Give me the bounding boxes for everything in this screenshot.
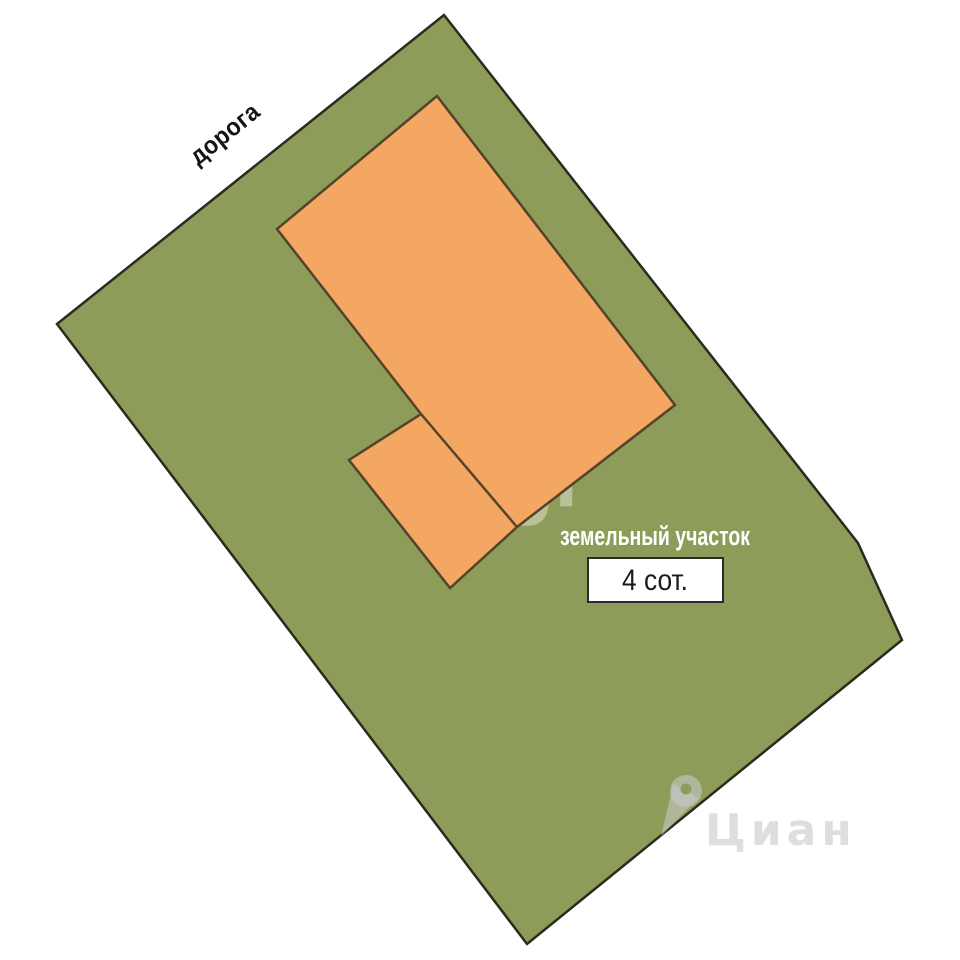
site-plan-canvas: etagi дорога земельный участок 4 сот. Ци…: [0, 0, 960, 960]
area-badge-text: 4 сот.: [622, 564, 688, 597]
watermark-corner: Циан: [661, 775, 857, 856]
plot-type-label: земельный участок: [560, 521, 750, 551]
area-badge: 4 сот.: [588, 558, 723, 602]
road-label: дорога: [184, 97, 266, 171]
watermark-cian-text: Циан: [705, 805, 857, 856]
map-pin-hole: [681, 784, 692, 795]
